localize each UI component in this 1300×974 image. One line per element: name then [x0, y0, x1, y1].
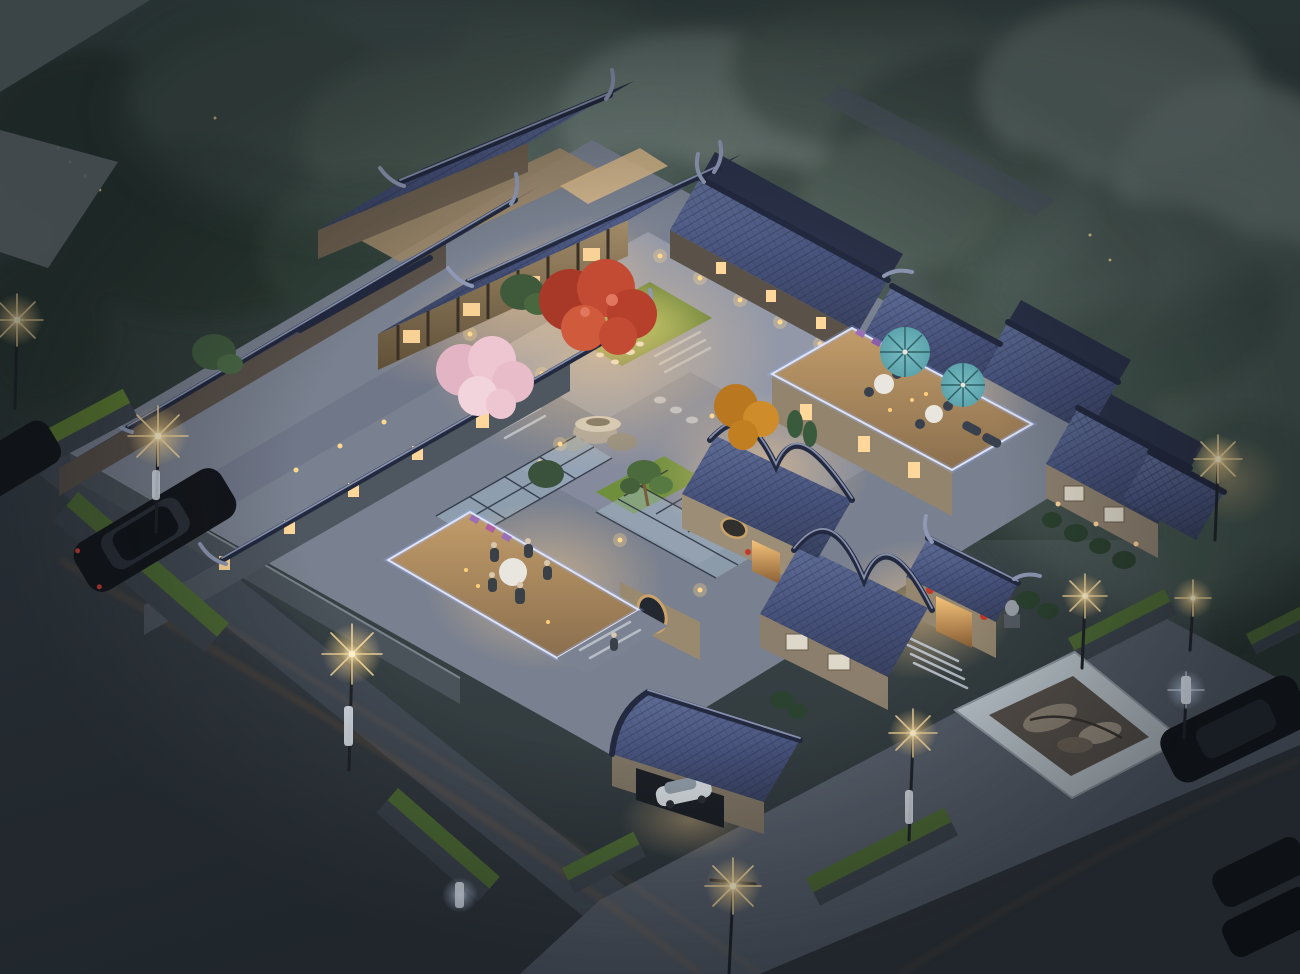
vignette-overlay	[0, 0, 1300, 974]
rendering-canvas	[0, 0, 1300, 974]
siheyuan-night-rendering	[0, 0, 1300, 974]
